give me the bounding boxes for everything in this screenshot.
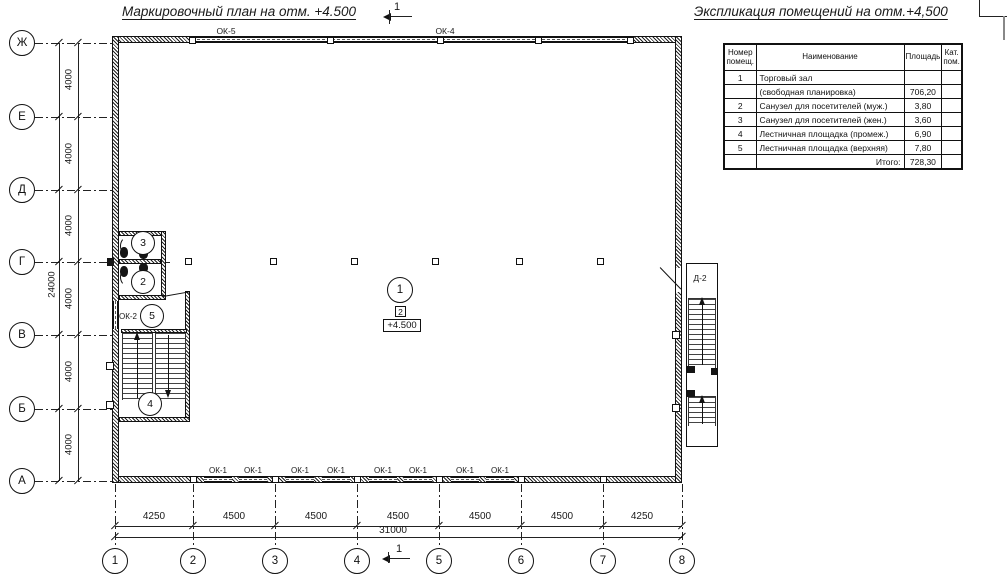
window-label-ok1: ОК-1: [452, 466, 478, 475]
table-row: 2 Санузел для посетителей (муж.) 3,80: [724, 99, 962, 113]
stair-up-arrow: [702, 401, 703, 424]
dim-label-4000: 4000: [64, 60, 75, 100]
column-marker: [432, 258, 439, 265]
cell-total-label: Итого:: [756, 155, 904, 170]
drawing-sheet: { "titles": { "plan": "Маркировочный пла…: [0, 0, 1007, 563]
plan-number-marker: 2: [395, 306, 406, 317]
section-marker-bottom-label: 1: [393, 543, 405, 555]
plan-title: Маркировочный план на отм. +4.500: [122, 4, 356, 19]
section-marker-bottom-stroke: [388, 552, 389, 563]
window-label-ok1: ОК-1: [405, 466, 431, 475]
dim-label-4250: 4250: [622, 511, 662, 522]
stair-down-arrow: [168, 335, 169, 391]
cell-number: 2: [724, 99, 756, 113]
row-axis-bubble-d: Д: [9, 177, 35, 203]
cell-area: 3,60: [904, 113, 942, 127]
toilet-fixture: [120, 247, 128, 258]
cell-number: [724, 155, 756, 170]
table-row-total: Итого: 728,30: [724, 155, 962, 170]
dim-label-4500: 4500: [296, 511, 336, 522]
axis-line-a: [35, 481, 112, 482]
col-axis-bubble-4: 4: [344, 548, 370, 574]
pilaster: [437, 37, 444, 44]
window-label-ok5: ОК-5: [212, 26, 240, 36]
window-ok1: [322, 477, 350, 482]
room-schedule-table: Номер помещ. Наименование Площадь Кат. п…: [723, 43, 963, 170]
room-circle-1: 1: [387, 277, 413, 303]
pilaster: [672, 404, 680, 412]
cell-number: 5: [724, 141, 756, 155]
cell-area: 3,80: [904, 99, 942, 113]
cell-name: (свободная планировка): [756, 85, 904, 99]
row-axis-bubble-a: А: [9, 468, 35, 494]
dim-label-31000: 31000: [373, 525, 413, 536]
window-label-ok2: ОК-2: [119, 312, 141, 321]
door-label-d2: Д-2: [689, 273, 711, 283]
cell-name: Лестничная площадка (верхняя): [756, 141, 904, 155]
pilaster: [600, 476, 607, 483]
pilaster: [518, 476, 525, 483]
col-axis-bubble-3: 3: [262, 548, 288, 574]
cell-number: 4: [724, 127, 756, 141]
table-row: 4 Лестничная площадка (промеж.) 6,90: [724, 127, 962, 141]
dim-label-24000: 24000: [47, 265, 58, 305]
th-category: Кат. пом.: [942, 44, 962, 71]
dim-label-4250: 4250: [134, 511, 174, 522]
th-room-number: Номер помещ.: [724, 44, 756, 71]
dim-line-total-h: [115, 537, 682, 538]
pilaster: [327, 37, 334, 44]
cell-name: Санузел для посетителей (жен.): [756, 113, 904, 127]
cell-category: [942, 113, 962, 127]
axis-line-e: [35, 117, 112, 118]
cell-category: [942, 71, 962, 85]
dim-label-4000: 4000: [64, 278, 75, 318]
pilaster: [672, 331, 680, 339]
cell-category: [942, 141, 962, 155]
window-label-ok1: ОК-1: [240, 466, 266, 475]
stair-post: [687, 366, 695, 373]
cell-category: [942, 155, 962, 170]
window-ok1: [204, 477, 232, 482]
dim-label-4500: 4500: [542, 511, 582, 522]
table-row: 3 Санузел для посетителей (жен.) 3,60: [724, 113, 962, 127]
table-row: (свободная планировка) 706,20: [724, 85, 962, 99]
dim-label-4000: 4000: [64, 352, 75, 392]
window-ok1: [369, 477, 397, 482]
cell-area: [904, 71, 942, 85]
elevation-marker: +4.500: [383, 319, 421, 332]
dim-label-4000: 4000: [64, 425, 75, 465]
room-circle-3: 3: [131, 231, 155, 255]
window-ok1: [451, 477, 479, 482]
wall-right: [675, 36, 682, 483]
room-circle-4: 4: [138, 392, 162, 416]
cell-category: [942, 85, 962, 99]
row-axis-bubble-zh: Ж: [9, 30, 35, 56]
schedule-title: Экспликация помещений на отм.+4,500: [694, 4, 948, 19]
table-row: 1 Торговый зал: [724, 71, 962, 85]
window-label-ok4: ОК-4: [431, 26, 459, 36]
pilaster: [627, 37, 634, 44]
row-axis-bubble-v: В: [9, 322, 35, 348]
row-axis-bubble-e: Е: [9, 104, 35, 130]
col-axis-bubble-6: 6: [508, 548, 534, 574]
frame-corner: [979, 0, 1007, 17]
col-axis-bubble-7: 7: [590, 548, 616, 574]
cell-area: 6,90: [904, 127, 942, 141]
pilaster: [272, 476, 279, 483]
section-flag-marker: [107, 258, 114, 266]
axis-line-v: [35, 335, 112, 336]
stair-up-arrowhead-icon: [699, 297, 705, 305]
column-marker: [351, 258, 358, 265]
room-circle-5: 5: [140, 304, 164, 328]
pilaster: [190, 476, 197, 483]
window-label-ok1: ОК-1: [370, 466, 396, 475]
section-marker-top-stroke: [389, 10, 390, 24]
window-label-ok1: ОК-1: [205, 466, 231, 475]
window-label-ok1: ОК-1: [487, 466, 513, 475]
cell-name: Лестничная площадка (промеж.): [756, 127, 904, 141]
th-name: Наименование: [756, 44, 904, 71]
window-ok1: [486, 477, 514, 482]
wc-wall-right: [161, 231, 166, 299]
cell-name: Санузел для посетителей (муж.): [756, 99, 904, 113]
col-axis-bubble-8: 8: [669, 548, 695, 574]
window-band-top: [192, 37, 630, 42]
wall-bottom: [112, 476, 682, 483]
pilaster: [354, 476, 361, 483]
cell-total-area: 728,30: [904, 155, 942, 170]
cell-area: 706,20: [904, 85, 942, 99]
cell-name: Торговый зал: [756, 71, 904, 85]
stair-up-arrow: [137, 339, 138, 398]
dim-label-4500: 4500: [378, 511, 418, 522]
toilet-fixture: [120, 266, 128, 277]
cell-number: [724, 85, 756, 99]
dim-label-4000: 4000: [64, 133, 75, 173]
table-row: 5 Лестничная площадка (верхняя) 7,80: [724, 141, 962, 155]
dim-label-4500: 4500: [460, 511, 500, 522]
cell-number: 3: [724, 113, 756, 127]
stair-up-arrowhead-icon: [699, 395, 705, 403]
cell-area: 7,80: [904, 141, 942, 155]
stair-down-arrowhead-icon: [165, 390, 171, 398]
pilaster: [106, 401, 114, 409]
row-axis-bubble-b: Б: [9, 396, 35, 422]
pilaster: [535, 37, 542, 44]
stair-up-arrowhead-icon: [134, 332, 140, 340]
schedule-header-row: Номер помещ. Наименование Площадь Кат. п…: [724, 44, 962, 71]
axis-line-d: [35, 190, 112, 191]
column-marker: [516, 258, 523, 265]
window-label-ok1: ОК-1: [287, 466, 313, 475]
cell-category: [942, 127, 962, 141]
wc-wall-bottom: [119, 295, 166, 300]
frame-corner-line: [1003, 16, 1005, 40]
stair-post: [711, 368, 717, 375]
col-axis-bubble-5: 5: [426, 548, 452, 574]
window-ok1: [286, 477, 314, 482]
th-area: Площадь: [904, 44, 942, 71]
cell-category: [942, 99, 962, 113]
pilaster: [436, 476, 443, 483]
column-marker: [597, 258, 604, 265]
section-marker-top-label: 1: [391, 1, 403, 13]
pilaster: [189, 37, 196, 44]
stair-post: [687, 390, 695, 397]
col-axis-bubble-1: 1: [102, 548, 128, 574]
pilaster: [106, 362, 114, 370]
col-axis-bubble-2: 2: [180, 548, 206, 574]
row-axis-bubble-g: Г: [9, 249, 35, 275]
dim-label-4000: 4000: [64, 206, 75, 246]
column-marker: [185, 258, 192, 265]
cell-number: 1: [724, 71, 756, 85]
window-ok2: [113, 301, 118, 329]
dim-label-4500: 4500: [214, 511, 254, 522]
window-ok1: [404, 477, 432, 482]
room-circle-2: 2: [131, 270, 155, 294]
stair-wall-bottom: [119, 417, 190, 422]
axis-line-b: [35, 409, 112, 410]
window-ok1: [239, 477, 267, 482]
axis-line-zh: [35, 43, 112, 44]
window-label-ok1: ОК-1: [323, 466, 349, 475]
column-marker: [270, 258, 277, 265]
stair-up-arrow: [702, 303, 703, 365]
